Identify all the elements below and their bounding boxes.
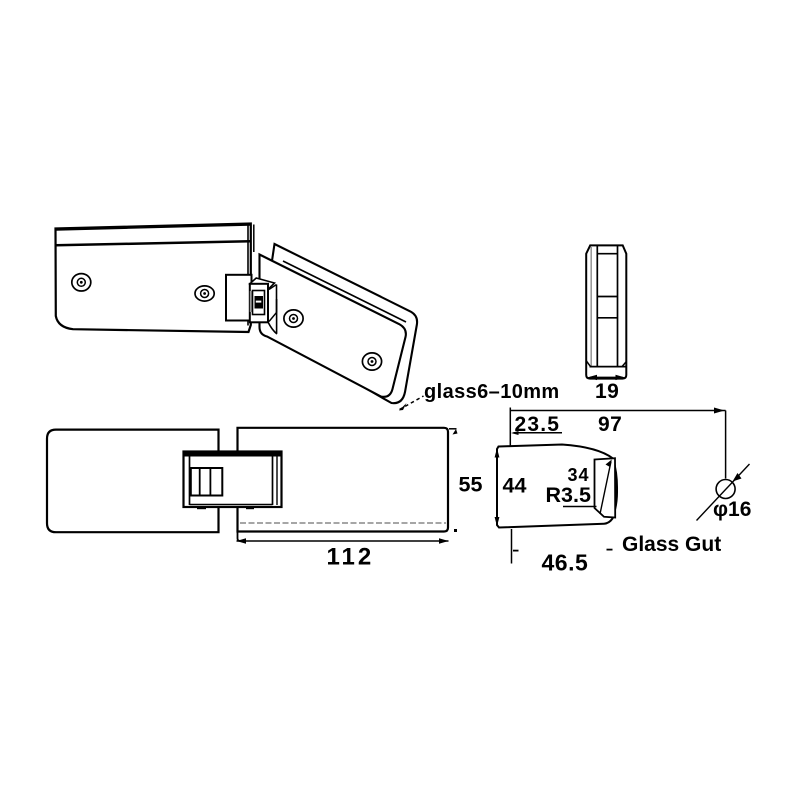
- svg-text:112: 112: [327, 544, 375, 571]
- svg-text:46.5: 46.5: [542, 550, 589, 576]
- svg-text:glass6–10mm: glass6–10mm: [424, 381, 560, 403]
- svg-text:44: 44: [503, 474, 527, 498]
- svg-text:97: 97: [598, 413, 622, 436]
- svg-text:R3.5: R3.5: [546, 483, 591, 507]
- svg-text:Glass Gut: Glass Gut: [622, 533, 721, 556]
- svg-text:34: 34: [568, 465, 590, 485]
- svg-text:φ16: φ16: [713, 498, 751, 521]
- svg-text:19: 19: [595, 380, 619, 403]
- svg-text:55: 55: [459, 473, 483, 497]
